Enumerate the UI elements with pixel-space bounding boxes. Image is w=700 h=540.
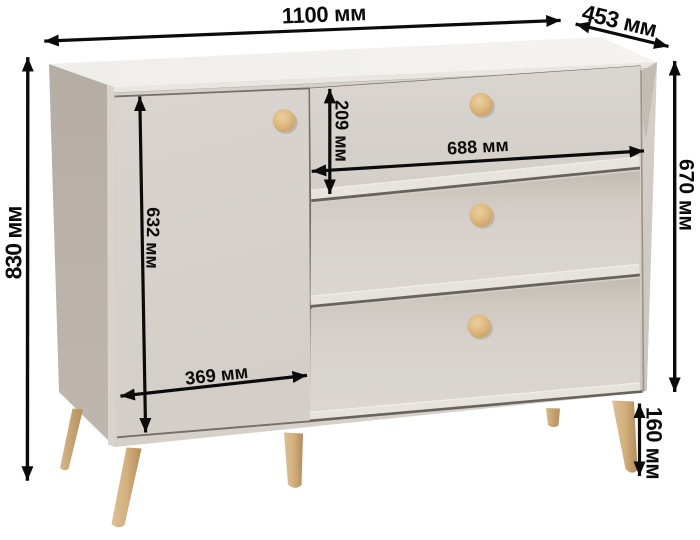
svg-text:209 мм: 209 мм bbox=[331, 100, 351, 162]
svg-text:632 мм: 632 мм bbox=[142, 207, 163, 269]
svg-text:670 мм: 670 мм bbox=[674, 159, 697, 231]
svg-text:1100 мм: 1100 мм bbox=[281, 0, 366, 28]
svg-text:830 мм: 830 мм bbox=[1, 207, 27, 280]
svg-text:688 мм: 688 мм bbox=[447, 135, 510, 159]
svg-text:160 мм: 160 мм bbox=[642, 407, 667, 479]
